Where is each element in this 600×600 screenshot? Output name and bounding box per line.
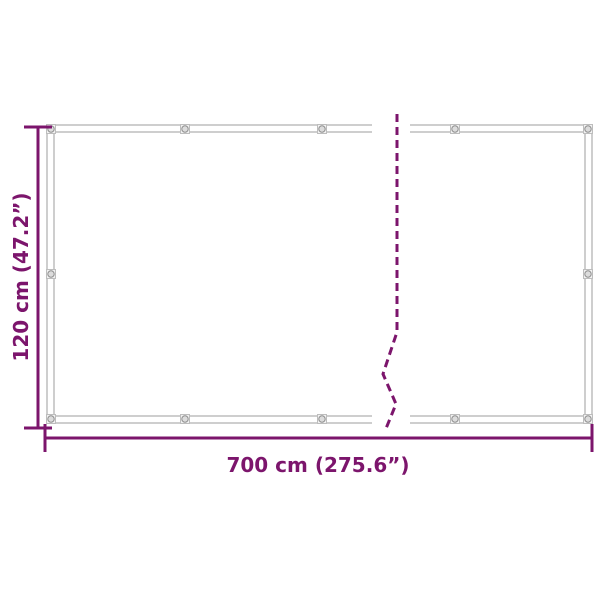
grommet-icon (451, 415, 460, 424)
grommet-icon (318, 415, 327, 424)
grommet-icon (584, 125, 593, 134)
grommet-icon (584, 270, 593, 279)
frame-outer-line (47, 125, 592, 423)
width-dimension-line (45, 424, 592, 452)
frame-inner-hem-line (54, 132, 585, 416)
grommet-icon (181, 415, 190, 424)
grommet-icon (451, 125, 460, 134)
grommet-icon (584, 415, 593, 424)
grommet-icon (318, 125, 327, 134)
grommet-icon (47, 270, 56, 279)
height-dimension-label: 120 cm (47.2”) (9, 192, 33, 361)
dimension-diagram: 120 cm (47.2”) 700 cm (275.6”) (0, 0, 600, 600)
grommets (47, 125, 593, 424)
grommet-icon (181, 125, 190, 134)
width-dimension-label: 700 cm (275.6”) (226, 453, 409, 477)
tarpaulin-outline (47, 125, 592, 423)
break-gap (372, 117, 410, 431)
grommet-icon (47, 415, 56, 424)
